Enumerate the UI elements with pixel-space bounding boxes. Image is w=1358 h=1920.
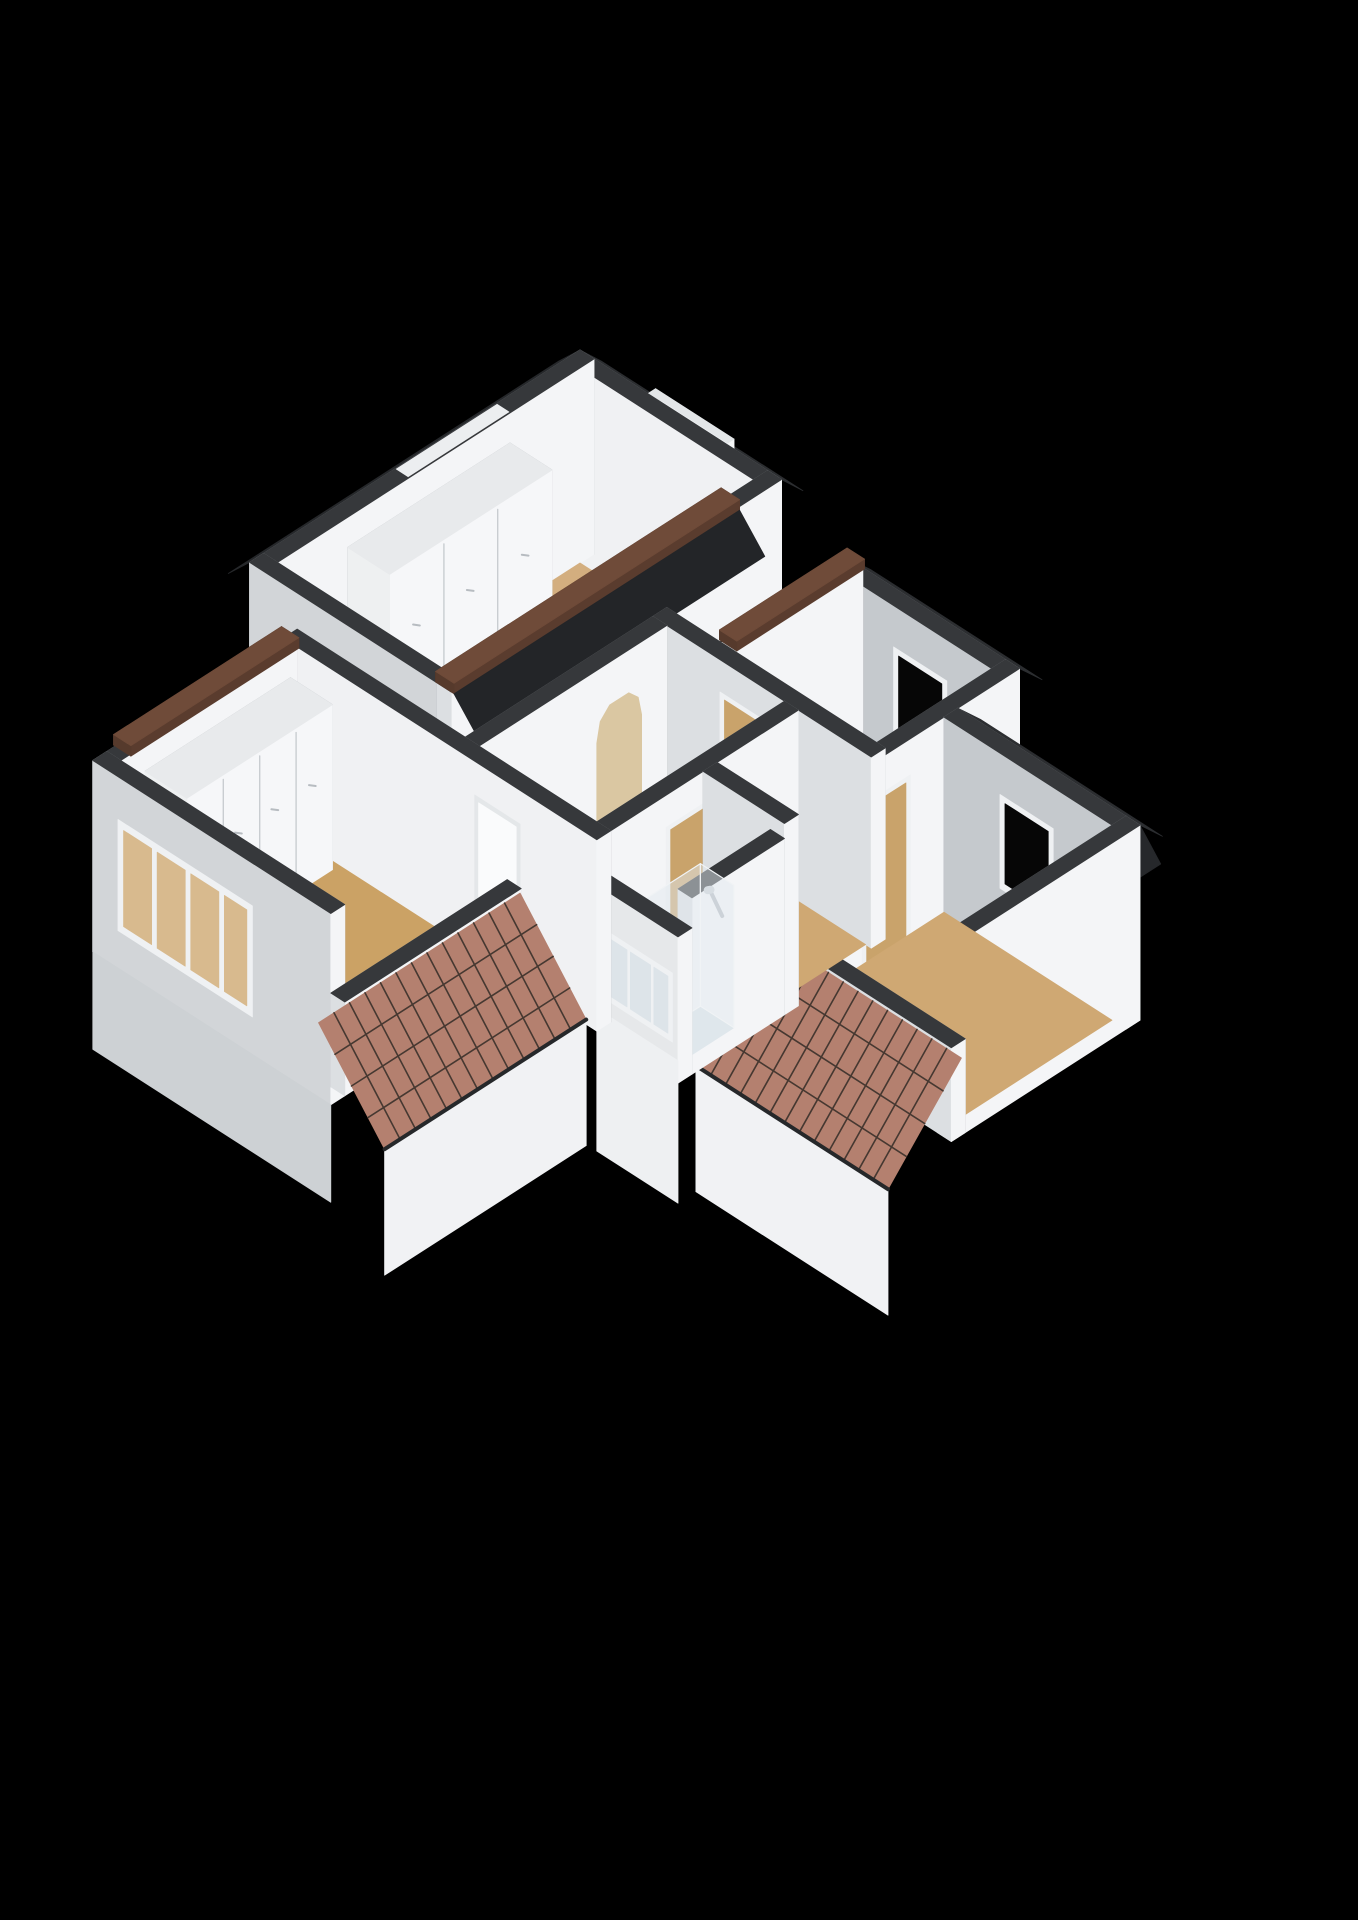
window-bedroom4-pane-1 xyxy=(124,831,152,945)
window-bedroom4-pane-4 xyxy=(224,895,246,1005)
window-bathroom-pane-3 xyxy=(654,967,668,1033)
floorplan-svg xyxy=(0,0,1358,1920)
window-bedroom4-pane-3 xyxy=(191,874,219,988)
shower-glass-screen-2 xyxy=(700,864,734,1028)
window-bedroom4-pane-2 xyxy=(157,852,185,966)
floorplan-3d-view xyxy=(0,0,1358,1920)
